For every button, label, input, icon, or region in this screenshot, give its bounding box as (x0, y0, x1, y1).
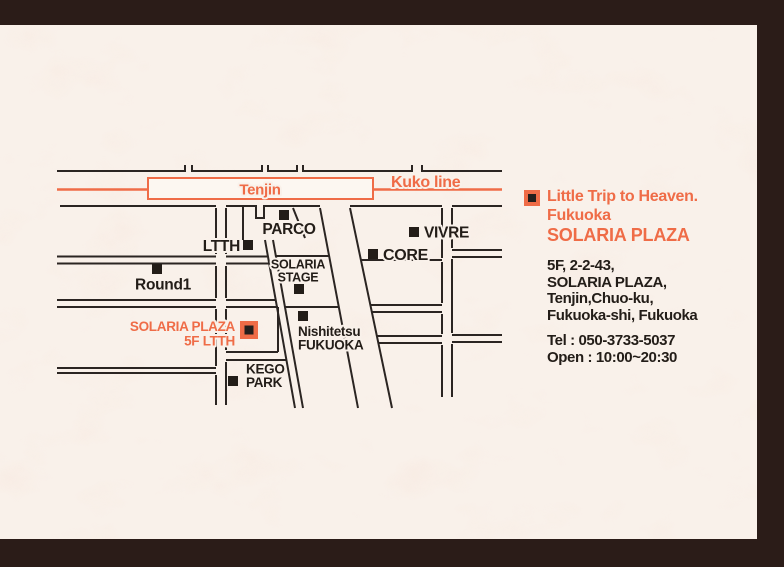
destination-label-line1: SOLARIA PLAZA (130, 319, 236, 334)
tenjin-station: Tenjin (148, 178, 373, 199)
contact-block: Tel : 050-3733-5037 Open : 10:00~20:30 (547, 332, 744, 366)
parco-label: PARCO (262, 221, 316, 238)
solaria-stage-marker (294, 284, 304, 294)
address-line3: Tenjin,Chuo-ku, (547, 291, 744, 308)
round1-label: Round1 (135, 277, 192, 294)
destination-legend-marker-icon (524, 190, 540, 206)
round1-marker (152, 264, 162, 274)
open-hours-line: Open : 10:00~20:30 (547, 349, 744, 366)
info-header: Little Trip to Heaven. Fukuoka SOLARIA P… (524, 187, 744, 245)
solaria-stage-label-line2: STAGE (278, 271, 319, 285)
nishitetsu-marker (298, 311, 308, 321)
address-line1: 5F, 2-2-43, (547, 258, 744, 275)
tel-line: Tel : 050-3733-5037 (547, 332, 744, 349)
ltth-marker (243, 240, 253, 250)
destination-map-marker-inner (245, 326, 254, 335)
info-title: Little Trip to Heaven. Fukuoka SOLARIA P… (547, 187, 698, 245)
tenjin-station-label: Tenjin (239, 182, 280, 199)
destination-label-line2: 5F LTTH (184, 334, 235, 349)
page-background: Kuko line Tenjin PARCO LTTH Round1 VIVRE… (0, 0, 784, 567)
kego-park-label-line2: PARK (246, 375, 283, 390)
address-block: 5F, 2-2-43, SOLARIA PLAZA, Tenjin,Chuo-k… (547, 258, 744, 324)
info-title-line1: Little Trip to Heaven. (547, 187, 698, 206)
kego-park-marker (228, 376, 238, 386)
address-line2: SOLARIA PLAZA, (547, 275, 744, 292)
vivre-marker (409, 227, 419, 237)
kuko-line-label: Kuko line (391, 174, 461, 191)
address-line4: Fukuoka-shi, Fukuoka (547, 308, 744, 325)
nishitetsu-label-line2: FUKUOKA (298, 338, 364, 353)
info-title-line3: SOLARIA PLAZA (547, 225, 698, 245)
core-label: CORE (383, 247, 429, 264)
info-panel: Little Trip to Heaven. Fukuoka SOLARIA P… (524, 187, 744, 366)
ltth-label: LTTH (203, 238, 240, 255)
core-marker (368, 249, 378, 259)
parco-marker (279, 210, 289, 220)
vivre-label: VIVRE (424, 225, 469, 242)
info-title-line2: Fukuoka (547, 206, 698, 225)
solaria-stage-label-line1: SOLARIA (271, 258, 325, 272)
